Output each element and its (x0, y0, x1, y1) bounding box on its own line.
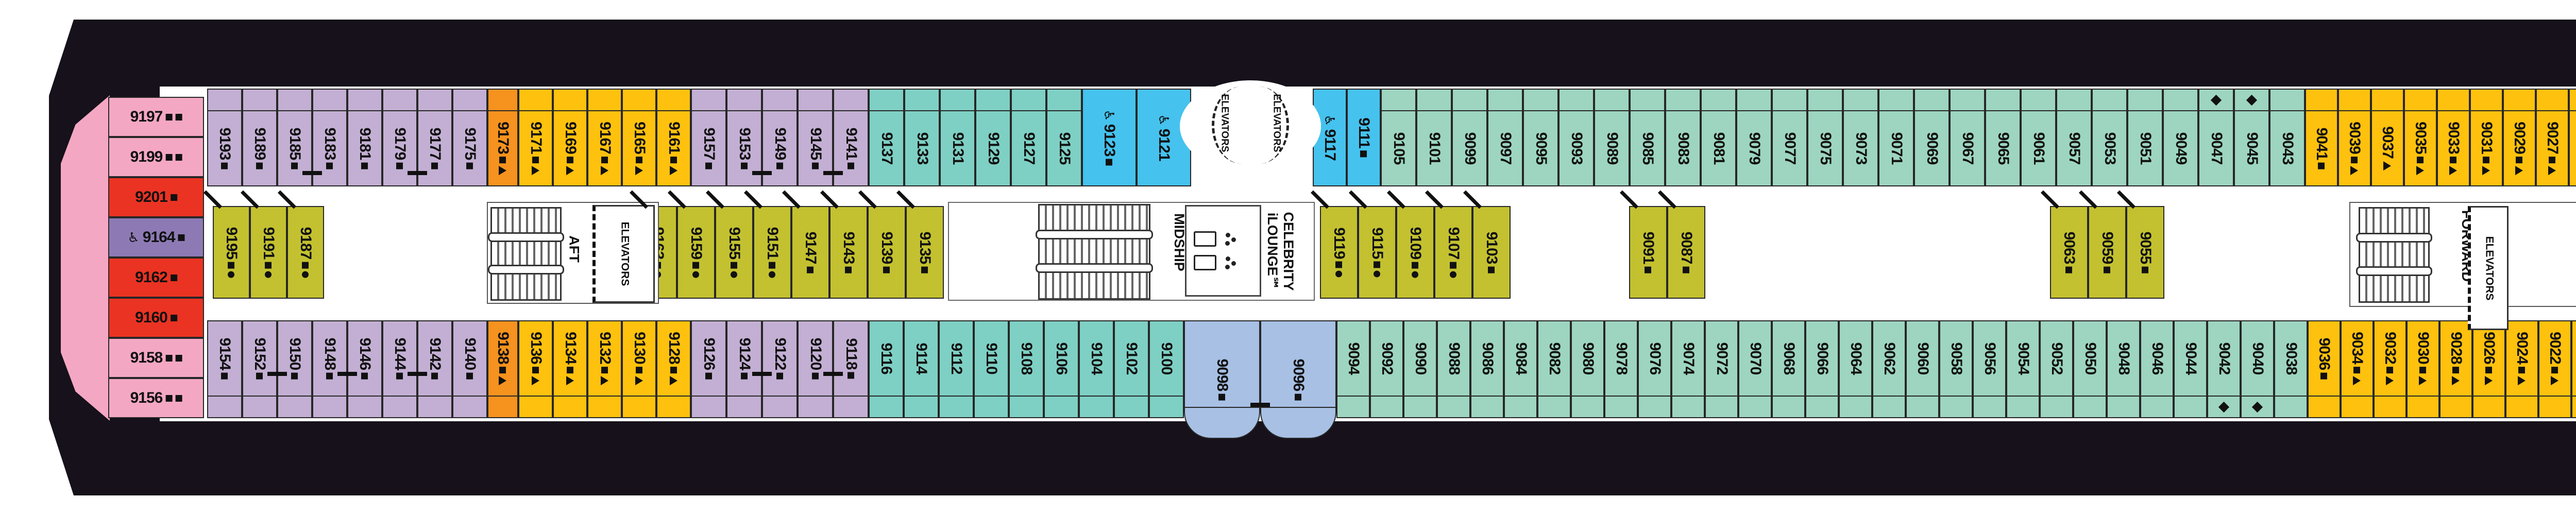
triangle-icon (601, 376, 608, 385)
balcony-band (623, 90, 655, 111)
square-icon (1295, 393, 1302, 400)
middle-group: 90919087 (1629, 206, 1705, 299)
cabin-9082: 9082 (1537, 320, 1571, 418)
stern-cabin-stack: 919791999201♿91649162916091589156 (108, 97, 206, 418)
cabin-9100: 9100 (1149, 320, 1184, 418)
cabin-9090: 9090 (1403, 320, 1437, 418)
square-icon (265, 262, 272, 268)
cabin-9045: 9045 (2234, 89, 2269, 186)
cabin-9158: 9158 (108, 338, 204, 378)
cabin-number: 9128 (665, 332, 683, 364)
cabin-number: 9028 (2447, 332, 2465, 364)
square-icon (1645, 266, 1652, 273)
cabin-9052: 9052 (2040, 320, 2073, 418)
balcony-band (2504, 90, 2535, 111)
cabin-number: 9133 (913, 132, 931, 165)
cabin-number: 9146 (356, 338, 374, 370)
cabin-9144: 9144 (382, 320, 417, 418)
square-icon (636, 367, 642, 373)
cabin-9167: 9167 (587, 89, 622, 186)
cabin-number: 9040 (2249, 342, 2266, 375)
cabin-number: 9039 (2346, 122, 2363, 154)
cabin-9072: 9072 (1705, 320, 1738, 418)
cabin-number: 9142 (426, 338, 444, 370)
cabin-9165: 9165 (622, 89, 656, 186)
cabin-number: 9123 (1100, 124, 1118, 157)
triangle-icon (2351, 166, 2359, 175)
cabin-9041: 9041 (2305, 89, 2338, 186)
middle-group: 919591919187 (213, 206, 324, 299)
cabin-number: 9102 (1123, 342, 1140, 375)
cabin-9020: 9020 (2571, 320, 2576, 418)
cabin-number: 9151 (764, 227, 781, 260)
cabin-number: 9082 (1546, 342, 1563, 375)
cabin-number: 9183 (321, 128, 338, 160)
cabin-number: 9049 (2172, 132, 2190, 165)
balcony-band (1873, 396, 1905, 417)
circle-icon (693, 271, 700, 278)
square-icon (741, 162, 748, 169)
cabin-number: 9173 (494, 122, 512, 154)
balcony-band (623, 396, 655, 417)
cabin-number: 9107 (1445, 227, 1462, 260)
balcony-band (1488, 90, 1522, 111)
cabin-number: 9150 (286, 338, 303, 370)
cabin-number: 9076 (1646, 342, 1664, 375)
cabin-number: 9153 (736, 128, 753, 160)
balcony-band (453, 396, 486, 417)
connecting-rooms-mark (267, 372, 287, 376)
cabin-9201: 9201 (108, 177, 204, 217)
cabin-9177: 9177 (417, 89, 452, 186)
square-icon (2142, 266, 2149, 273)
balcony-band (2242, 396, 2273, 417)
cabin-number: 9070 (1747, 342, 1764, 375)
balcony-band (2408, 396, 2438, 417)
balcony-band (2093, 90, 2126, 111)
square-icon (165, 154, 172, 161)
balcony-band (1951, 90, 1984, 111)
square-icon (636, 157, 642, 163)
balcony-band (278, 396, 311, 417)
balcony-band (2275, 396, 2307, 417)
cabin-number: 9043 (2279, 132, 2296, 165)
cabin-9091: 9091 (1629, 206, 1667, 299)
cabin-9118: 9118 (833, 320, 869, 418)
balcony-band (2164, 90, 2197, 111)
cabin-number: 9078 (1613, 342, 1630, 375)
balcony-band (243, 90, 276, 111)
cabin-number: 9061 (2030, 132, 2047, 165)
cabin-number: 9179 (391, 128, 409, 160)
cabin-number: 9158 (130, 349, 163, 367)
cabin-number: 9091 (1639, 232, 1657, 264)
cabin-9159: 9159 (677, 206, 715, 299)
computer-terminal-icon (1194, 231, 1216, 247)
diamond-icon (2252, 401, 2263, 412)
cabin-number: 9155 (725, 227, 743, 260)
diamond-icon (2211, 94, 2222, 105)
cabin-number: 9175 (461, 128, 479, 160)
middle-group: 91639159915591519147914391399135 (639, 206, 944, 299)
balcony-band (834, 396, 868, 417)
cabin-number: 9084 (1512, 342, 1530, 375)
cabin-9074: 9074 (1671, 320, 1705, 418)
square-icon (601, 367, 608, 373)
balcony-band (1986, 90, 2020, 111)
cabin-number: 9073 (1852, 132, 1870, 165)
square-icon (776, 162, 783, 169)
balcony-band (1879, 90, 1913, 111)
cabin-9103: 9103 (1472, 206, 1511, 299)
cabin-9084: 9084 (1504, 320, 1537, 418)
cabin-number: 9054 (2014, 342, 2032, 375)
balcony-band (2175, 396, 2206, 417)
connecting-rooms-mark (1250, 403, 1270, 407)
triangle-icon (2485, 376, 2493, 385)
balcony-band (1808, 90, 1842, 111)
cabin-9036: 9036 (2308, 320, 2341, 418)
cabin-number: 9193 (216, 128, 233, 160)
balcony-band (1840, 396, 1871, 417)
cabin-9195: 9195 (213, 206, 250, 299)
cabin-number: 9050 (2081, 342, 2099, 375)
square-icon (257, 162, 263, 169)
cabin-9116: 9116 (869, 320, 904, 418)
cabin-9191: 9191 (250, 206, 287, 299)
balcony-band (2375, 396, 2405, 417)
cabin-number: 9104 (1088, 342, 1105, 375)
cabin-number: 9063 (2060, 232, 2078, 264)
connecting-rooms-mark (823, 171, 843, 175)
balcony-band (1337, 396, 1369, 417)
square-icon (1106, 159, 1113, 166)
cabin-9075: 9075 (1807, 89, 1843, 186)
cabin-number: 9051 (2137, 132, 2154, 165)
cabin-number: 9169 (562, 122, 579, 154)
balcony-band (2199, 90, 2233, 111)
balcony-band (1639, 396, 1670, 417)
balcony-band (905, 396, 938, 417)
square-icon (292, 162, 298, 169)
wheelchair-icon: ♿ (127, 231, 139, 244)
balcony-band (453, 90, 486, 111)
triangle-icon (532, 376, 539, 385)
cabin-number: 9164 (143, 229, 175, 246)
cabin-number: 9108 (1018, 342, 1035, 375)
cabin-9197: 9197 (108, 97, 204, 137)
balcony-band (2473, 396, 2504, 417)
balcony-band (2007, 396, 2039, 417)
diamond-icon (2218, 401, 2229, 412)
square-icon (500, 367, 506, 373)
balcony-band (1631, 90, 1664, 111)
cabin-number: 9096 (1290, 359, 1307, 391)
square-icon (292, 372, 298, 379)
cabin-number: 9094 (1345, 342, 1362, 375)
cabin-number: 9154 (216, 338, 233, 370)
cabin-number: 9052 (2048, 342, 2065, 375)
balcony-band (2208, 396, 2240, 417)
cabin-number: 9112 (947, 342, 965, 374)
cabin-number: 9058 (1947, 342, 1965, 375)
elevators-label-right: ELEVATORS (1271, 94, 1282, 152)
square-icon (776, 372, 783, 379)
square-icon (741, 372, 748, 379)
triangle-icon (2450, 166, 2458, 175)
balcony-band (975, 396, 1008, 417)
balcony-band (1417, 90, 1451, 111)
cabin-9049: 9049 (2163, 89, 2198, 186)
cabin-number: 9056 (1981, 342, 1998, 375)
cabin-9164: ♿9164 (108, 217, 204, 257)
cabin-9047: 9047 (2198, 89, 2234, 186)
aft-label: AFT (566, 235, 582, 262)
square-icon (175, 154, 182, 161)
cabin-number: 9036 (2315, 338, 2333, 370)
square-icon (2483, 157, 2490, 163)
cabin-9101: 9101 (1416, 89, 1452, 186)
cabin-number: 9105 (1390, 132, 1408, 165)
cabin-number: 9160 (135, 309, 167, 327)
square-icon (2450, 157, 2457, 163)
cabin-9130: 9130 (622, 320, 656, 418)
triangle-icon (2551, 376, 2559, 385)
balcony-band (418, 396, 451, 417)
cabin-9033: 9033 (2437, 89, 2470, 186)
square-icon (1488, 266, 1495, 273)
balcony-band (1150, 396, 1183, 417)
square-icon (1450, 262, 1457, 268)
balcony-band (2041, 396, 2072, 417)
square-icon (2420, 367, 2427, 373)
connecting-rooms-mark (752, 372, 772, 376)
wheelchair-icon: ♿ (1157, 114, 1171, 126)
midship-elevator-lobby: ELEVATORS ELEVATORS (1180, 80, 1321, 172)
balcony-band (383, 90, 416, 111)
cabin-number: 9111 (1355, 117, 1372, 148)
cabin-number: 9031 (2478, 122, 2495, 154)
balcony-band (2570, 90, 2576, 111)
square-icon (362, 162, 368, 169)
balcony-band (1047, 90, 1081, 111)
balcony-band (1115, 396, 1148, 417)
cabin-number: 9081 (1710, 132, 1727, 165)
cabin-9030: 9030 (2406, 320, 2439, 418)
cabin-9127: 9127 (1011, 89, 1046, 186)
cabin-number: 9124 (736, 338, 753, 370)
cabin-number: 9127 (1020, 132, 1038, 165)
balcony-band (588, 396, 621, 417)
cabin-9189: 9189 (242, 89, 277, 186)
triangle-icon (499, 166, 507, 175)
square-icon (2486, 367, 2493, 373)
square-icon (2516, 157, 2523, 163)
balcony-band (1045, 396, 1078, 417)
square-icon (467, 162, 473, 169)
cabin-number: 9144 (391, 338, 409, 370)
cabin-9040: 9040 (2241, 320, 2274, 418)
square-icon (848, 372, 854, 379)
balcony-band (519, 396, 552, 417)
cabin-number: 9059 (2098, 232, 2116, 264)
cabin-number: 9116 (877, 342, 895, 374)
cabin-9032: 9032 (2374, 320, 2406, 418)
cabin-number: 9092 (1378, 342, 1396, 375)
cabin-number: 9171 (527, 122, 545, 154)
balcony-band (657, 396, 690, 417)
cabin-number: 9143 (840, 232, 857, 264)
cabin-9136: 9136 (518, 320, 553, 418)
balcony-band (799, 90, 832, 111)
cabin-number: 9101 (1426, 132, 1443, 165)
balcony-band (588, 90, 621, 111)
cabin-9068: 9068 (1772, 320, 1805, 418)
connecting-rooms-mark (823, 372, 843, 376)
circle-icon (1336, 271, 1343, 278)
cabin-number: 9042 (2215, 342, 2233, 375)
square-icon (1361, 151, 1367, 158)
cabin-number: 9095 (1532, 132, 1550, 165)
cabin-9061: 9061 (2021, 89, 2056, 186)
square-icon (2519, 367, 2526, 373)
square-icon (175, 355, 182, 362)
cabin-number: 9093 (1568, 132, 1585, 165)
cabin-9143: 9143 (829, 206, 868, 299)
balcony-band (1524, 90, 1557, 111)
balcony-band (2306, 90, 2337, 111)
cabin-number: 9126 (700, 338, 718, 370)
circle-icon (1374, 271, 1381, 278)
circle-icon (1450, 271, 1457, 278)
cabin-9038: 9038 (2274, 320, 2308, 418)
triangle-icon (2518, 376, 2526, 385)
balcony-band (1974, 396, 2005, 417)
cabin-9131: 9131 (940, 89, 975, 186)
square-icon (432, 372, 438, 379)
balcony-band (383, 396, 416, 417)
cabin-9085: 9085 (1630, 89, 1665, 186)
cabin-9122: 9122 (762, 320, 798, 418)
cabin-9079: 9079 (1736, 89, 1772, 186)
cabin-number: 9086 (1479, 342, 1496, 375)
cabin-number: 9047 (2208, 132, 2225, 165)
triangle-icon (635, 376, 643, 385)
cabin-9148: 9148 (312, 320, 347, 418)
cabin-9080: 9080 (1571, 320, 1604, 418)
cabin-number: 9035 (2412, 122, 2429, 154)
triangle-icon (2419, 376, 2427, 385)
cabin-9089: 9089 (1594, 89, 1630, 186)
cabin-9133: 9133 (904, 89, 940, 186)
top-cabin-row: 9193918991859183918191799177917591739171… (207, 89, 2576, 186)
cabin-number: 9098 (1213, 359, 1231, 391)
balcony-band (2022, 90, 2055, 111)
balcony-band (2141, 396, 2173, 417)
balcony-band (1907, 396, 1938, 417)
square-icon (2318, 162, 2325, 169)
balcony-band (418, 90, 451, 111)
cabin-9124: 9124 (726, 320, 762, 418)
square-icon (812, 372, 819, 379)
cabin-number: 9159 (687, 227, 705, 260)
balcony-band (1453, 90, 1486, 111)
balcony-band (1471, 396, 1503, 417)
cabin-9060: 9060 (1906, 320, 1939, 418)
cabin-number: 9137 (878, 132, 895, 165)
balcony-band (763, 396, 796, 417)
cabin-number: 9117 (1321, 129, 1338, 161)
cabin-number: 9114 (912, 342, 930, 374)
square-icon (693, 262, 700, 268)
balcony-band (2438, 90, 2469, 111)
balcony-band (834, 90, 868, 111)
balcony-band (348, 396, 381, 417)
connecting-rooms-mark (408, 372, 427, 376)
square-icon (500, 157, 506, 163)
circle-icon (265, 271, 272, 278)
cabin-number: 9119 (1330, 227, 1348, 259)
triangle-icon (2384, 161, 2392, 170)
balcony-band (348, 90, 381, 111)
cabin-number: 9138 (494, 332, 512, 364)
connecting-rooms-mark (408, 171, 427, 175)
cabin-9146: 9146 (347, 320, 382, 418)
cabin-number: 9149 (771, 128, 789, 160)
cabin-9183: 9183 (312, 89, 347, 186)
balcony-band (1382, 90, 1415, 111)
balcony-band (2270, 90, 2304, 111)
cabin-9125: 9125 (1046, 89, 1082, 186)
cabin-9160: 9160 (108, 298, 204, 338)
cabin-9141: 9141 (833, 89, 869, 186)
cabin-number: 9069 (1923, 132, 1941, 165)
cabin-9069: 9069 (1914, 89, 1950, 186)
square-icon (2066, 266, 2073, 273)
cabin-number: 9139 (878, 232, 895, 264)
balcony-band (1572, 396, 1603, 417)
square-icon (812, 162, 819, 169)
cabin-9107: 9107 (1434, 206, 1472, 299)
cabin-9102: 9102 (1114, 320, 1149, 418)
cabin-9129: 9129 (975, 89, 1011, 186)
cabin-9119: 9119 (1320, 206, 1358, 299)
balcony-band (940, 396, 973, 417)
cabin-number: 9121 (1155, 129, 1173, 161)
cabin-9106: 9106 (1044, 320, 1079, 418)
balcony-band (1595, 90, 1629, 111)
square-icon (302, 262, 309, 268)
balcony-band (2441, 396, 2471, 417)
cabin-number: 9134 (562, 332, 579, 364)
cabin-9034: 9034 (2341, 320, 2374, 418)
diamond-icon (2246, 94, 2257, 105)
balcony-band (941, 90, 974, 111)
cabin-9039: 9039 (2338, 89, 2371, 186)
cabin-9058: 9058 (1939, 320, 1973, 418)
balcony-band (2572, 396, 2576, 417)
square-icon (171, 194, 177, 201)
cabin-9199: 9199 (108, 137, 204, 177)
cabin-9022: 9022 (2538, 320, 2571, 418)
balcony-band (799, 396, 832, 417)
elevators-label-left: ELEVATORS (1218, 94, 1230, 152)
cabin-9048: 9048 (2107, 320, 2140, 418)
cabin-9152: 9152 (242, 320, 277, 418)
square-icon (171, 315, 177, 321)
square-icon (222, 372, 228, 379)
square-icon (848, 162, 854, 169)
